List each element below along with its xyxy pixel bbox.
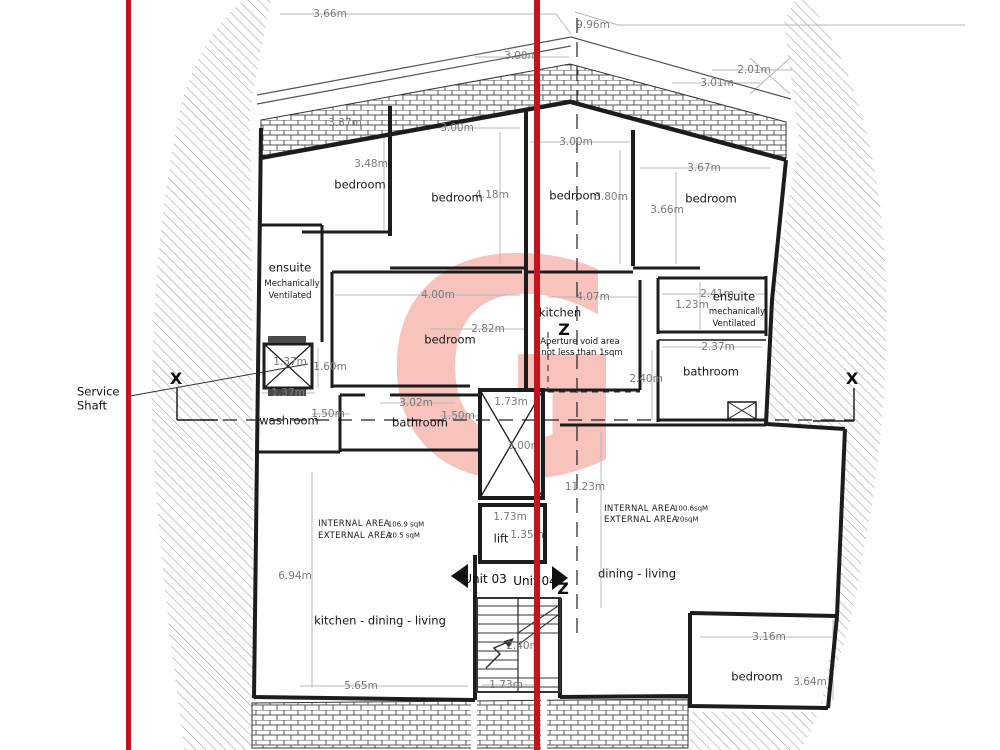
dimension-label: 2.01m <box>737 65 771 76</box>
dimension-label: 1.73m <box>489 680 523 691</box>
area-label: INTERNAL AREA <box>604 505 676 514</box>
room-label: bedroom <box>685 193 736 205</box>
area-label: EXTERNAL AREA <box>604 516 678 525</box>
section-marker-x-right: X <box>846 371 858 387</box>
section-marker-x-left: X <box>170 371 182 387</box>
labels-layer: 3.66m9.96m3.00m2.01m3.01m3.37m3.00m3.00m… <box>0 0 1000 750</box>
room-label: ensuite <box>713 291 755 303</box>
dimension-label: 3.00m <box>504 51 538 62</box>
note-label: Aperture void area <box>540 338 620 347</box>
floor-plan-drawing: G <box>0 0 1000 750</box>
area-label: EXTERNAL AREA <box>318 532 392 541</box>
dimension-label: 4.07m <box>576 292 610 303</box>
area-value: 106.9 sqM <box>388 522 424 529</box>
dimension-label: 1.37m <box>273 357 307 368</box>
room-label: bathroom <box>683 366 739 378</box>
area-label: INTERNAL AREA <box>318 520 390 529</box>
dimension-label: 3.00m <box>440 123 474 134</box>
room-label: bedroom <box>334 179 385 191</box>
dimension-label: 3.01m <box>700 78 734 89</box>
dimension-label: 3.16m <box>752 632 786 643</box>
dimension-label: 3.66m <box>650 205 684 216</box>
dimension-label: 3.37m <box>328 118 362 129</box>
note-label: Ventilated <box>713 320 756 329</box>
dimension-label: 1.73m <box>494 397 528 408</box>
section-marker-z-top: Z <box>558 322 570 338</box>
note-label: Ventilated <box>269 292 312 301</box>
room-label: lift <box>494 533 509 545</box>
room-label: bedroom <box>431 192 482 204</box>
service-shaft-label: Shaft <box>77 400 107 412</box>
room-label: kitchen - dining - living <box>314 615 446 627</box>
area-value: 20.5 sqM <box>388 533 420 540</box>
dimension-label: 9.96m <box>576 20 610 31</box>
dimension-label: 3.00m <box>559 137 593 148</box>
dimension-label: 5.65m <box>344 681 378 692</box>
dimension-label: 2.37m <box>701 342 735 353</box>
dimension-label: 1.23m <box>675 300 709 311</box>
note-label: mechanically <box>709 308 765 317</box>
dimension-label: 2.40m <box>629 374 663 385</box>
room-label: kitchen <box>539 307 581 319</box>
dimension-label: 2.82m <box>471 324 505 335</box>
room-label: bedroom <box>424 334 475 346</box>
room-label: washroom <box>259 415 318 427</box>
area-value: 100.6sqM <box>674 506 708 513</box>
dimension-label: 4.00m <box>421 290 455 301</box>
dimension-label: 3.64m <box>793 677 827 688</box>
unit-03-label: Unit 03 <box>463 573 507 585</box>
dimension-label: 11.23m <box>565 482 605 493</box>
area-value: 20sqM <box>675 517 698 524</box>
note-label: Mechanically <box>264 280 319 289</box>
dimension-label: 1.73m <box>493 512 527 523</box>
dimension-label: 6.94m <box>278 571 312 582</box>
dimension-label: 1.37m <box>271 388 305 399</box>
section-cut-line-middle <box>534 0 540 750</box>
dimension-label: 3.66m <box>313 9 347 20</box>
dimension-label: 3.48m <box>354 159 388 170</box>
section-marker-z-bottom: Z <box>557 581 569 597</box>
room-label: ensuite <box>269 262 311 274</box>
room-label: bathroom <box>392 417 448 429</box>
service-shaft-label: Service <box>77 386 120 398</box>
room-label: bedroom <box>549 190 600 202</box>
room-label: bedroom <box>731 671 782 683</box>
section-cut-line-left <box>126 0 131 750</box>
dimension-label: 3.67m <box>687 163 721 174</box>
room-label: dining - living <box>598 568 676 580</box>
dimension-label: 1.60m <box>313 362 347 373</box>
dimension-label: 3.02m <box>399 398 433 409</box>
note-label: not less than 1sqm <box>541 349 622 358</box>
